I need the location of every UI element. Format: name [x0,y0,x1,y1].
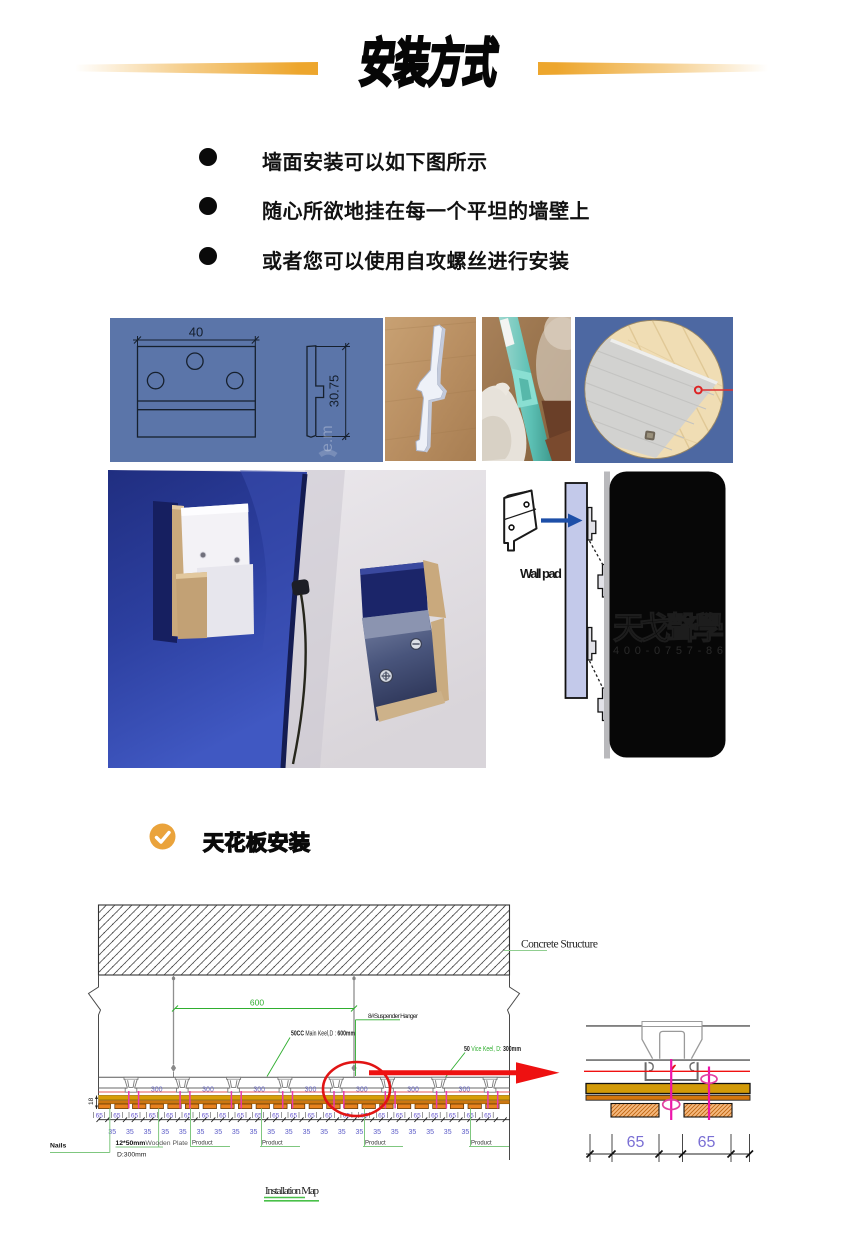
svg-text:50CC Main Keel,D : 600mm: 50CC Main Keel,D : 600mm [291,1031,355,1038]
svg-text:35: 35 [444,1129,452,1136]
svg-text:12*50mmWooden Plate: 12*50mmWooden Plate [116,1140,189,1147]
svg-text:35: 35 [303,1129,311,1136]
svg-text:Nails: Nails [50,1143,66,1150]
svg-text:35: 35 [320,1129,328,1136]
svg-text:35: 35 [338,1129,346,1136]
svg-text:18: 18 [88,1097,95,1105]
svg-text:300: 300 [356,1087,368,1094]
svg-text:D:300mm: D:300mm [117,1152,147,1159]
svg-text:35: 35 [373,1129,381,1136]
svg-text:Product: Product [471,1141,492,1147]
svg-text:35: 35 [126,1129,134,1136]
svg-text:35: 35 [161,1129,169,1136]
svg-text:Concrete Structure: Concrete Structure [521,939,598,951]
svg-text:35: 35 [250,1129,258,1136]
svg-text:300: 300 [459,1087,471,1094]
svg-text:8#Suspender Hanger: 8#Suspender Hanger [368,1013,419,1020]
svg-text:35: 35 [462,1129,470,1136]
svg-text:Product: Product [262,1141,283,1147]
svg-text:Wall pad: Wall pad [520,566,562,581]
svg-text:Installation Map: Installation Map [265,1185,320,1197]
svg-text:300: 300 [305,1087,317,1094]
svg-text:300: 300 [407,1087,419,1094]
svg-text:35: 35 [267,1129,275,1136]
svg-text:35: 35 [144,1129,152,1136]
svg-text:e.m: e.m [319,425,336,452]
svg-text:35: 35 [409,1129,417,1136]
svg-text:35: 35 [356,1129,364,1136]
svg-text:50 Vice Keel, D: 300mm: 50 Vice Keel, D: 300mm [464,1046,521,1053]
svg-text:35: 35 [197,1129,205,1136]
svg-text:65: 65 [627,1134,645,1151]
svg-text:天戈聲學: 天戈聲學 [613,611,724,646]
svg-text:300: 300 [151,1087,163,1094]
svg-text:Product: Product [192,1141,213,1147]
svg-text:300: 300 [253,1087,265,1094]
svg-text:35: 35 [214,1129,222,1136]
svg-text:65: 65 [698,1134,716,1151]
svg-text:35: 35 [391,1129,399,1136]
svg-text:400-0757-86: 400-0757-86 [613,645,723,657]
svg-text:35: 35 [285,1129,293,1136]
svg-text:30.75: 30.75 [327,375,342,408]
svg-text:300: 300 [202,1087,214,1094]
svg-text:35: 35 [179,1129,187,1136]
svg-text:Product: Product [365,1141,386,1147]
svg-text:600: 600 [250,998,264,1008]
svg-text:35: 35 [232,1129,240,1136]
svg-text:35: 35 [426,1129,434,1136]
svg-text:40: 40 [189,325,203,340]
